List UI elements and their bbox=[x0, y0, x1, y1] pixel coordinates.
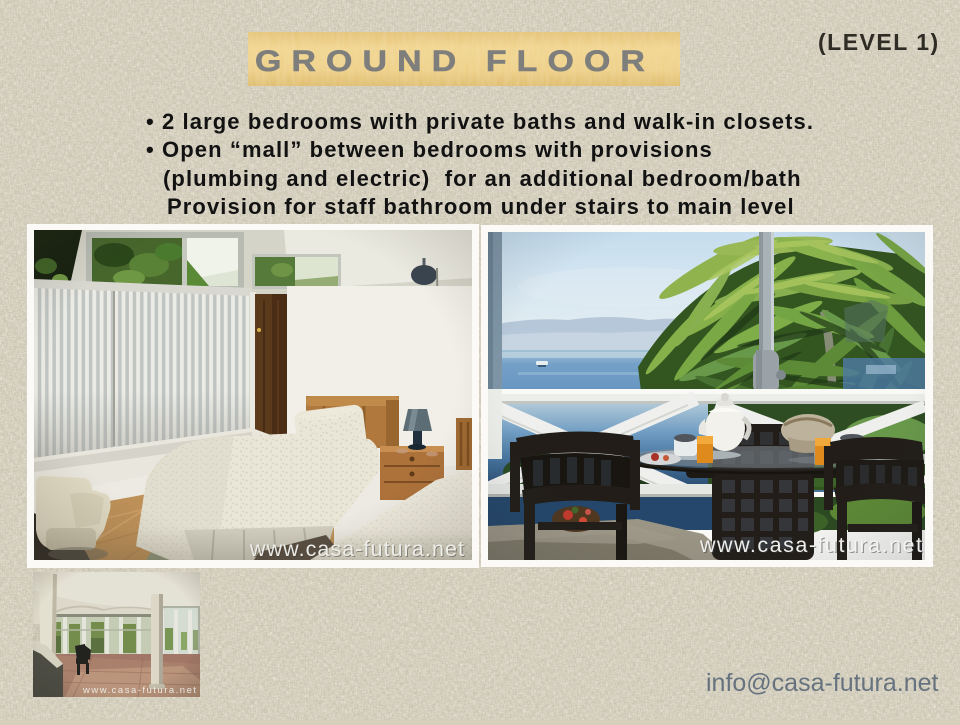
svg-text:GROUND FLOOR: GROUND FLOOR bbox=[255, 45, 655, 78]
svg-text:www.casa-futura.net: www.casa-futura.net bbox=[82, 685, 196, 696]
svg-text:www.casa-futura.net: www.casa-futura.net bbox=[249, 537, 464, 560]
svg-text:www.casa-futura.net: www.casa-futura.net bbox=[699, 533, 922, 557]
